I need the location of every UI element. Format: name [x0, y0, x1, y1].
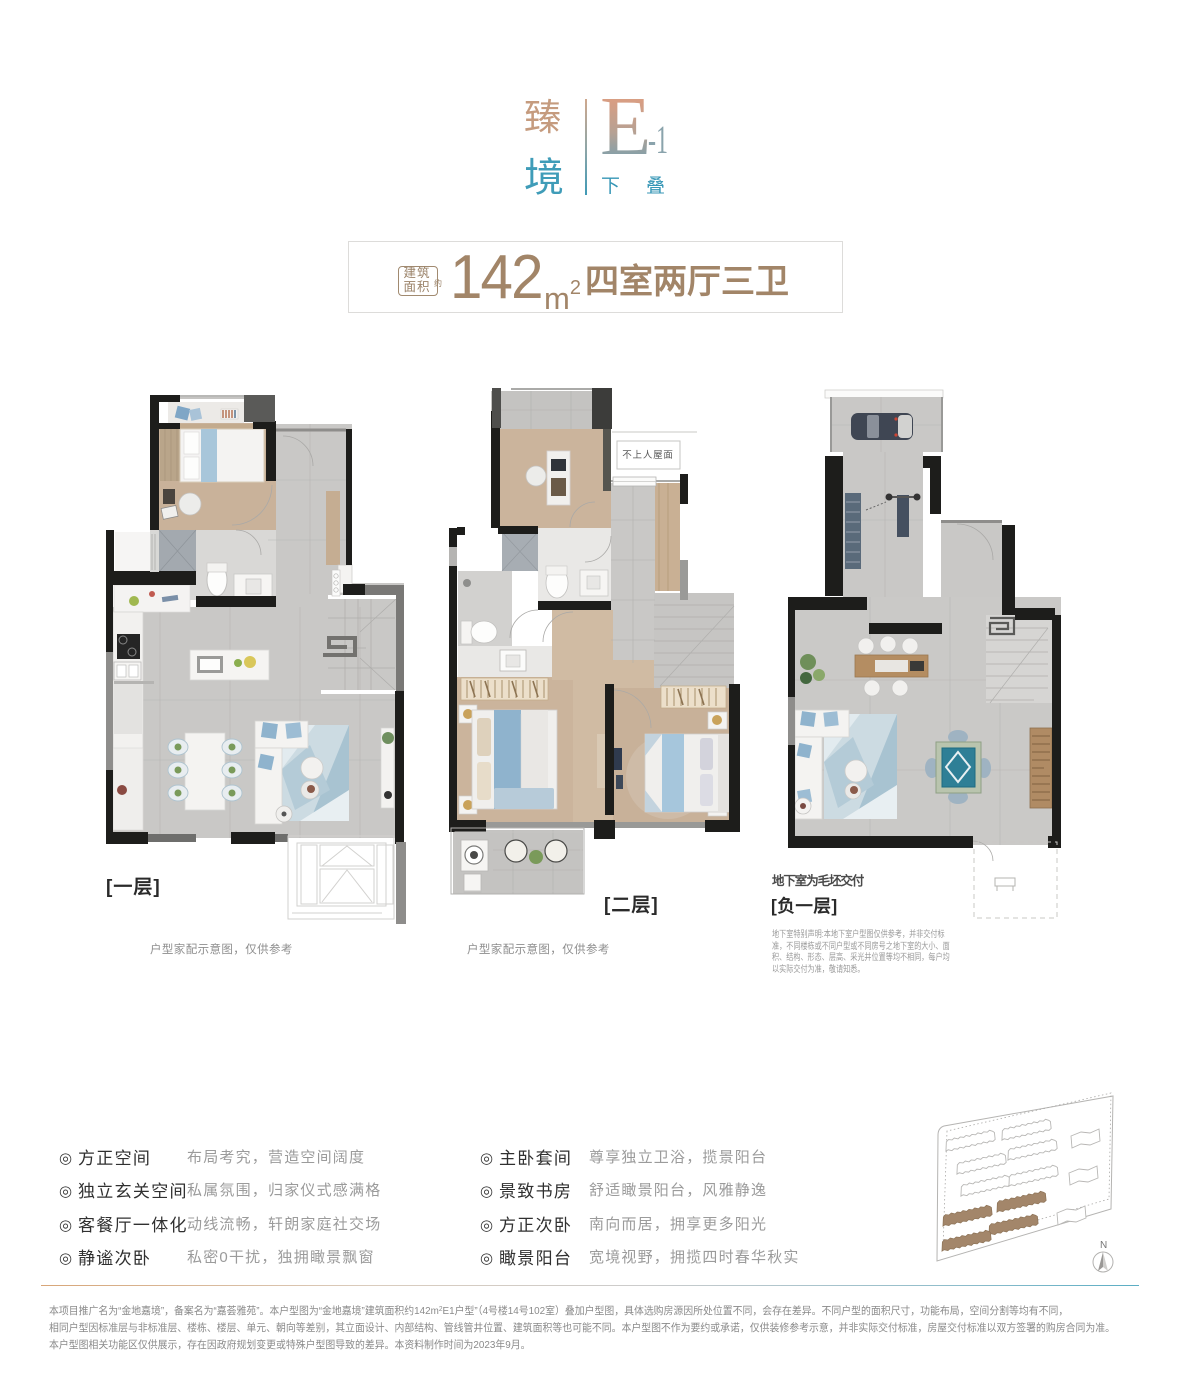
svg-text:N: N: [1100, 1240, 1107, 1251]
svg-text:不上人屋面: 不上人屋面: [622, 450, 674, 461]
